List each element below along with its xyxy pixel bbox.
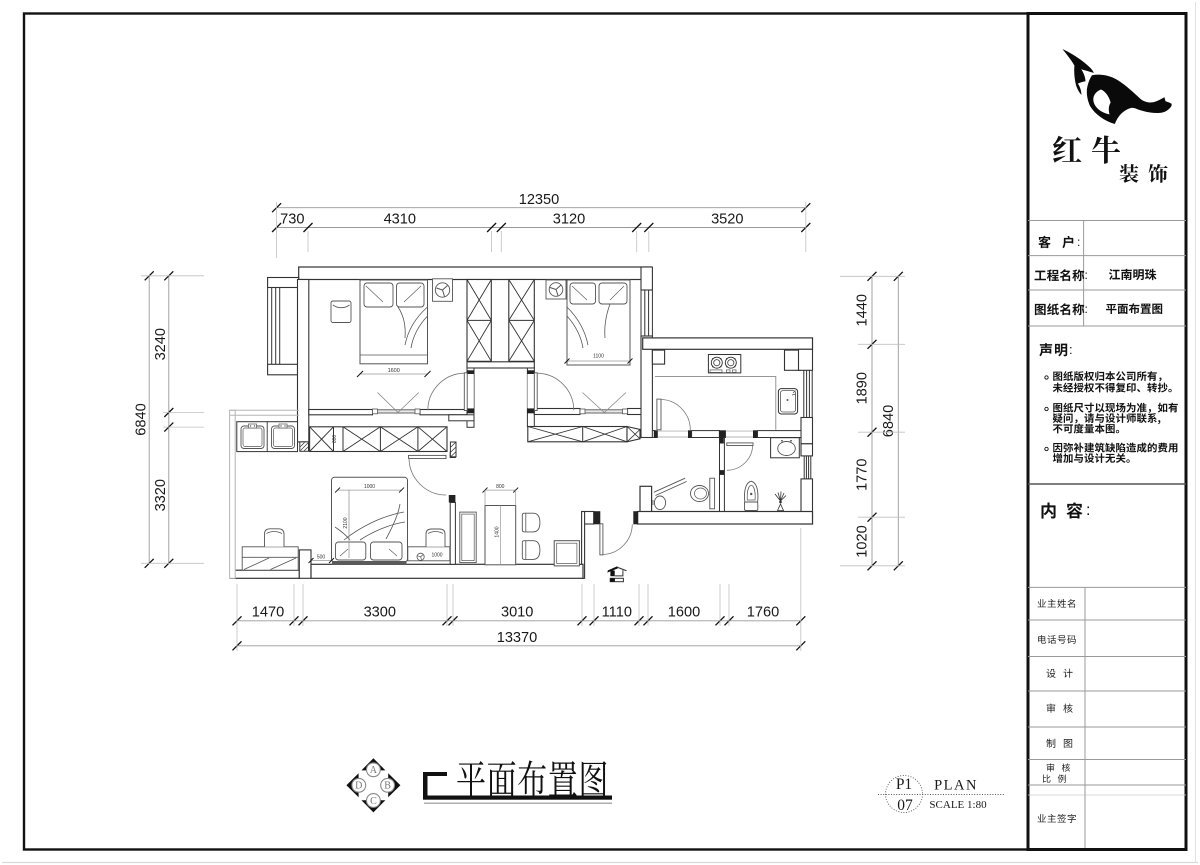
svg-text:730: 730 bbox=[280, 212, 304, 228]
svg-text:3120: 3120 bbox=[553, 212, 585, 228]
svg-text:P1: P1 bbox=[896, 776, 912, 793]
svg-text:1470: 1470 bbox=[252, 605, 284, 621]
svg-text:13370: 13370 bbox=[497, 630, 538, 646]
svg-text:1890: 1890 bbox=[855, 372, 871, 404]
svg-text:SCALE 1:80: SCALE 1:80 bbox=[929, 799, 987, 811]
svg-text:1600: 1600 bbox=[388, 368, 400, 374]
svg-text:A: A bbox=[370, 765, 378, 776]
svg-text:1020: 1020 bbox=[855, 525, 871, 557]
svg-text::: : bbox=[1085, 302, 1088, 316]
svg-text:1440: 1440 bbox=[855, 294, 871, 326]
svg-text:B: B bbox=[384, 781, 391, 792]
svg-text:1760: 1760 bbox=[747, 605, 779, 621]
svg-text:1770: 1770 bbox=[855, 458, 871, 490]
svg-text:PLAN: PLAN bbox=[934, 778, 978, 794]
svg-text:600: 600 bbox=[332, 435, 338, 444]
svg-text:800: 800 bbox=[496, 484, 505, 490]
svg-text:1100: 1100 bbox=[593, 354, 604, 360]
svg-text::: : bbox=[1077, 235, 1080, 249]
svg-text::: : bbox=[1086, 502, 1090, 519]
svg-text::: : bbox=[1085, 268, 1088, 282]
svg-text:3520: 3520 bbox=[711, 212, 743, 228]
svg-text:500: 500 bbox=[317, 555, 326, 561]
svg-text:12350: 12350 bbox=[519, 192, 560, 208]
svg-text:1600: 1600 bbox=[668, 605, 700, 621]
svg-text:07: 07 bbox=[897, 797, 913, 814]
svg-text:3240: 3240 bbox=[153, 328, 169, 360]
svg-text:6840: 6840 bbox=[134, 403, 150, 435]
svg-text:D: D bbox=[355, 781, 362, 792]
svg-text:1000: 1000 bbox=[364, 484, 375, 490]
svg-text:1400: 1400 bbox=[495, 526, 501, 537]
svg-text:3300: 3300 bbox=[364, 605, 396, 621]
svg-text:C: C bbox=[370, 796, 377, 807]
svg-text:1000: 1000 bbox=[431, 553, 442, 559]
svg-text:4310: 4310 bbox=[384, 212, 416, 228]
svg-text:3320: 3320 bbox=[153, 479, 169, 511]
svg-text:1110: 1110 bbox=[602, 605, 632, 621]
svg-text::: : bbox=[1069, 342, 1073, 357]
svg-text:3010: 3010 bbox=[501, 605, 533, 621]
svg-text:2100: 2100 bbox=[343, 517, 349, 528]
